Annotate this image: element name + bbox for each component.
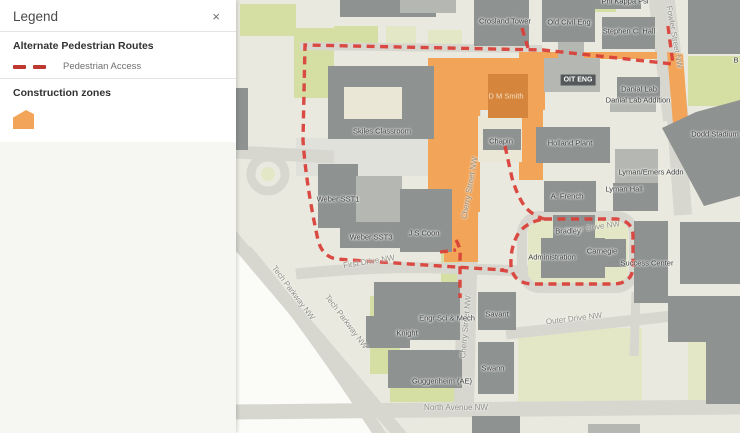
legend-item [13, 108, 223, 131]
legend-card: Legend × Alternate Pedestrian Routes Ped… [0, 0, 236, 142]
map-canvas[interactable]: Crosland TowerOld Civil EngStephen C. Ha… [236, 0, 740, 433]
legend-section-routes: Alternate Pedestrian Routes Pedestrian A… [0, 32, 236, 78]
legend-section-title: Alternate Pedestrian Routes [13, 40, 223, 52]
panel-title: Legend [13, 9, 58, 24]
legend-item-label: Pedestrian Access [63, 61, 141, 72]
pedestrian-route-swatch-icon [13, 65, 47, 69]
legend-panel: Legend × Alternate Pedestrian Routes Ped… [0, 0, 236, 433]
map-graphics [236, 0, 740, 433]
construction-zone-swatch-icon [13, 110, 34, 129]
legend-section-title: Construction zones [13, 87, 223, 99]
close-icon[interactable]: × [208, 8, 224, 25]
legend-section-construction: Construction zones [0, 79, 236, 137]
building-dm-smith [488, 74, 528, 118]
legend-item: Pedestrian Access [13, 61, 223, 72]
